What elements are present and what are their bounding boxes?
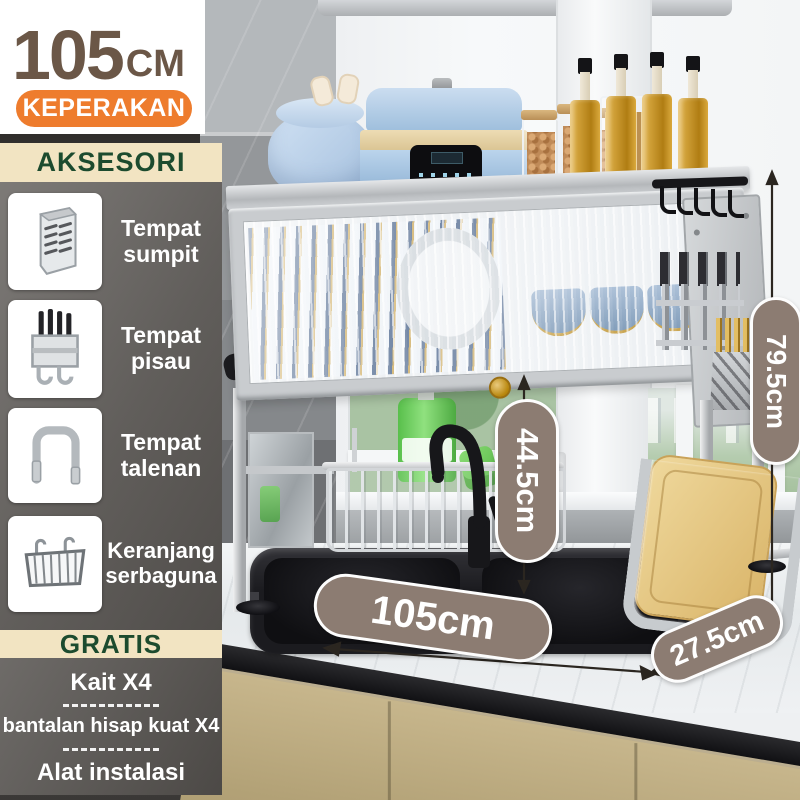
size-number: 105	[12, 22, 123, 89]
clearance-height-value: 44.5cm	[509, 428, 545, 533]
accessory-thumbnail	[8, 516, 102, 612]
product-listing-image: 44.5cm 79.5cm 105cm 27.5cm 105 CM KEPERA…	[0, 0, 800, 800]
accessory-thumbnail	[8, 300, 102, 398]
accessory-label: Keranjang serbaguna	[102, 516, 220, 612]
dashed-divider	[63, 704, 159, 707]
free-item: Alat instalasi	[0, 759, 222, 787]
size-unit: CM	[123, 45, 185, 88]
cutting-board-hook-icon	[22, 416, 88, 496]
accessory-label: Tempat sumpit	[102, 193, 220, 290]
clearance-height-label: 44.5cm	[495, 399, 559, 563]
free-items-header: GRATIS	[0, 630, 222, 658]
chopstick-holder-icon	[22, 202, 88, 282]
dashed-divider	[63, 748, 159, 751]
accessory-thumbnail	[8, 408, 102, 503]
sidebar: AKSESORI Tempat sumpit	[0, 143, 222, 795]
accessories-header: AKSESORI	[0, 143, 222, 182]
variant-badge: KEPERAKAN	[16, 90, 192, 127]
overall-height-value: 79.5cm	[760, 334, 792, 429]
accessory-label: Tempat pisau	[102, 300, 220, 398]
size-title: 105 CM	[12, 2, 185, 88]
size-panel: 105 CM KEPERAKAN	[0, 0, 205, 134]
free-item: bantalan hisap kuat X4	[0, 715, 222, 738]
free-item: Kait X4	[0, 669, 222, 697]
accessories-list: Tempat sumpit Tempat pisau	[0, 182, 222, 630]
accessory-thumbnail	[8, 193, 102, 290]
wire-basket-icon	[20, 524, 90, 604]
free-items-list: Kait X4 bantalan hisap kuat X4 Alat inst…	[0, 658, 222, 795]
overall-height-label: 79.5cm	[750, 297, 800, 465]
knife-rack-icon	[22, 307, 88, 391]
accessory-label: Tempat talenan	[102, 408, 220, 503]
width-value: 105cm	[368, 587, 498, 649]
